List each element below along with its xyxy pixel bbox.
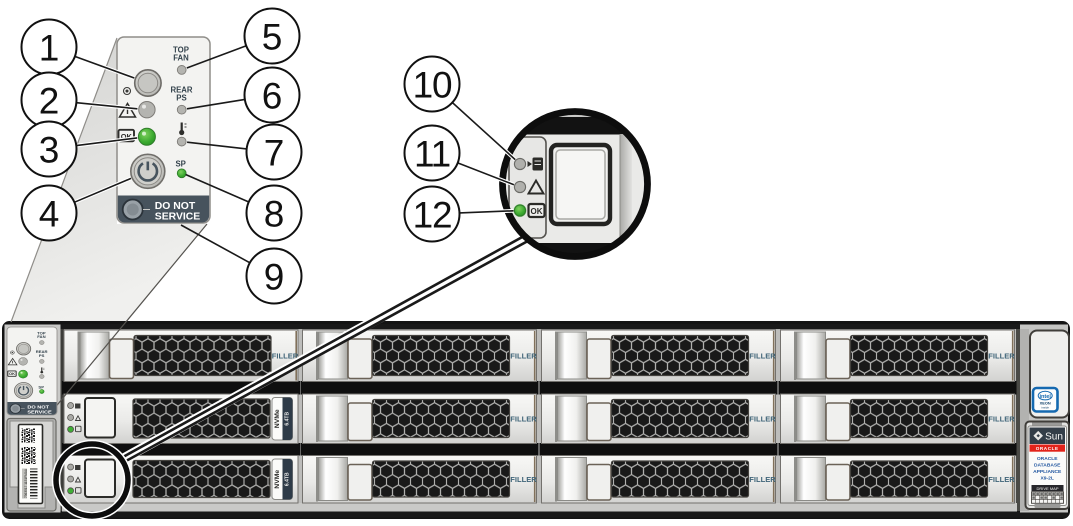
svg-text:10: 10 <box>413 64 452 105</box>
svg-text:FILLER: FILLER <box>749 352 776 361</box>
svg-text:DATABASE: DATABASE <box>1034 463 1061 469</box>
svg-text:DRIVE MAP: DRIVE MAP <box>1036 486 1058 491</box>
svg-text:FILLER: FILLER <box>749 415 776 424</box>
svg-text:11: 11 <box>414 133 450 174</box>
svg-text:intel: intel <box>1039 394 1051 400</box>
svg-text:X9-2L: X9-2L <box>1041 476 1054 482</box>
svg-text:6: 6 <box>262 75 283 116</box>
svg-text:1: 1 <box>39 27 60 68</box>
svg-text:6.4TB: 6.4TB <box>284 472 290 486</box>
svg-text:FILLER: FILLER <box>510 475 537 484</box>
svg-text:OK: OK <box>531 207 543 216</box>
svg-text:3: 3 <box>39 129 60 170</box>
svg-text:7363517 1151FMAA: 7363517 1151FMAA <box>24 468 28 498</box>
svg-text:8: 8 <box>264 193 285 234</box>
svg-text:FILLER: FILLER <box>988 475 1015 484</box>
svg-text:FILLER: FILLER <box>510 352 537 361</box>
svg-text:12: 12 <box>413 194 452 235</box>
svg-text:PS: PS <box>176 94 186 103</box>
svg-text:FAN: FAN <box>173 54 189 63</box>
svg-text:FILLER: FILLER <box>510 415 537 424</box>
svg-text:APPLIANCE: APPLIANCE <box>1033 469 1062 475</box>
svg-text:FILLER: FILLER <box>988 415 1015 424</box>
svg-text:SERVICE: SERVICE <box>155 212 200 223</box>
svg-text:inside: inside <box>1041 406 1049 410</box>
svg-text:Sun: Sun <box>1045 432 1063 443</box>
svg-text:6.4TB: 6.4TB <box>284 412 290 426</box>
svg-text:FILLER: FILLER <box>988 352 1015 361</box>
svg-text:SP: SP <box>175 160 185 169</box>
svg-text:2: 2 <box>39 80 60 121</box>
svg-text:NVMe: NVMe <box>274 409 281 428</box>
svg-text:5: 5 <box>262 16 283 57</box>
svg-text:DO NOT: DO NOT <box>155 201 196 212</box>
svg-text:ORACLE: ORACLE <box>1037 456 1058 462</box>
svg-text:9: 9 <box>264 256 285 297</box>
svg-text:NVMe: NVMe <box>274 470 281 489</box>
svg-text:4: 4 <box>39 193 60 234</box>
svg-text:FILLER: FILLER <box>749 475 776 484</box>
svg-text:ORACLE: ORACLE <box>1036 446 1059 451</box>
svg-text:7: 7 <box>264 132 285 173</box>
